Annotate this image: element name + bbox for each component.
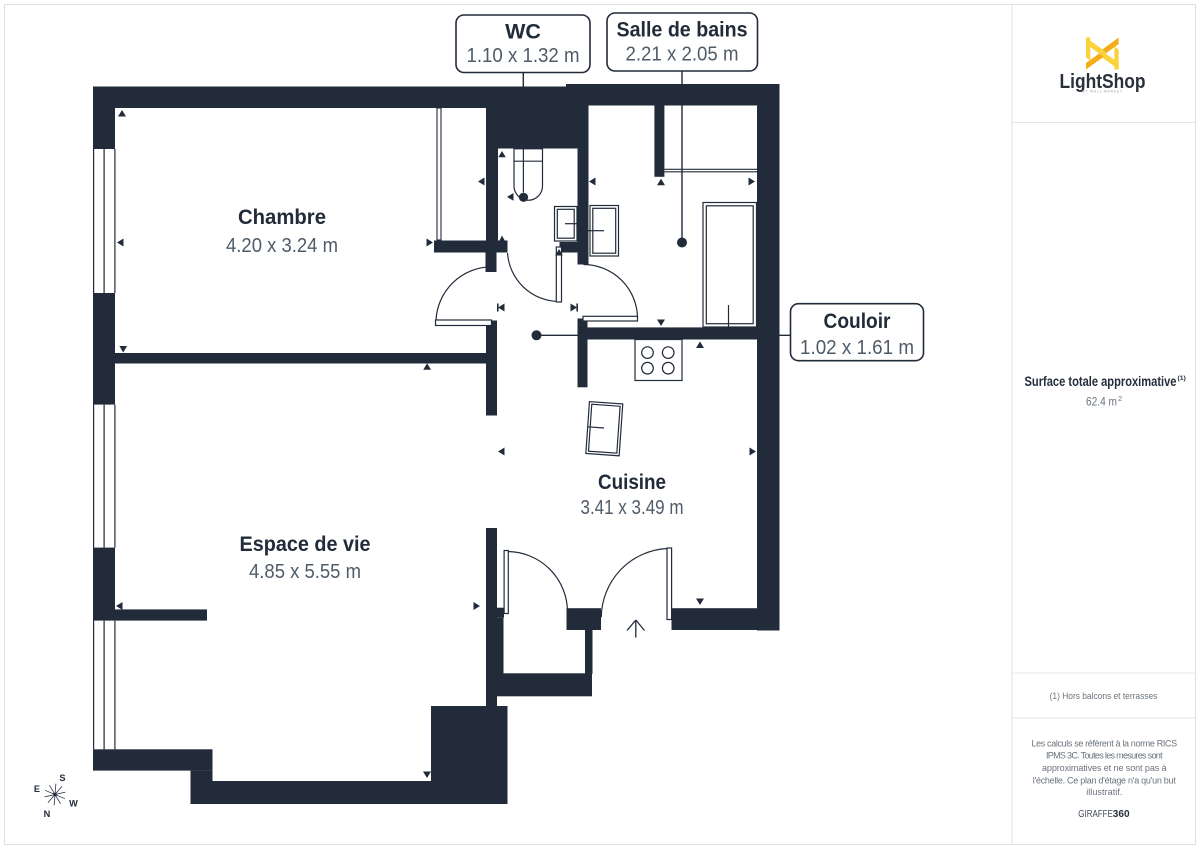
svg-text:WC: WC [505, 20, 541, 44]
svg-text:BY WALL MARKET: BY WALL MARKET [1082, 90, 1123, 94]
svg-text:(1): (1) [1178, 375, 1186, 382]
svg-text:2: 2 [1118, 394, 1122, 403]
svg-text:Couloir: Couloir [824, 309, 892, 333]
svg-text:4.20 x 3.24 m: 4.20 x 3.24 m [226, 235, 338, 257]
svg-text:4.85 x 5.55 m: 4.85 x 5.55 m [249, 561, 361, 583]
svg-text:l'échelle. Ce plan d'étage n'a: l'échelle. Ce plan d'étage n'a qu'un but [1033, 775, 1176, 785]
svg-text:Chambre: Chambre [238, 205, 326, 229]
svg-text:approximatives et ne sont pas: approximatives et ne sont pas à [1042, 763, 1167, 773]
svg-text:1.10 x 1.32 m: 1.10 x 1.32 m [467, 45, 580, 67]
svg-text:N: N [44, 809, 51, 819]
svg-text:Espace de vie: Espace de vie [240, 532, 371, 556]
svg-text:Cuisine: Cuisine [598, 470, 666, 494]
svg-text:S: S [59, 773, 65, 783]
svg-text:(1) Hors balcons et terrasses: (1) Hors balcons et terrasses [1050, 691, 1158, 701]
svg-text:GIRAFFE: GIRAFFE [1078, 809, 1113, 820]
svg-text:W: W [69, 799, 78, 809]
svg-text:Surface totale approximative: Surface totale approximative [1025, 374, 1177, 389]
svg-text:illustratif.: illustratif. [1086, 787, 1122, 797]
svg-text:Les calculs se réfèrent à la n: Les calculs se réfèrent à la norme RICS [1031, 738, 1177, 748]
svg-text:2.21 x 2.05 m: 2.21 x 2.05 m [626, 44, 739, 66]
svg-text:E: E [34, 784, 40, 794]
svg-text:IPMS 3C. Toutes les mesures so: IPMS 3C. Toutes les mesures sont [1046, 751, 1163, 761]
svg-text:3.41 x 3.49 m: 3.41 x 3.49 m [581, 497, 684, 519]
svg-text:Salle de bains: Salle de bains [617, 18, 748, 42]
svg-text:360: 360 [1113, 809, 1130, 820]
svg-text:62.4 m: 62.4 m [1086, 394, 1117, 408]
svg-text:1.02 x 1.61 m: 1.02 x 1.61 m [800, 337, 914, 359]
